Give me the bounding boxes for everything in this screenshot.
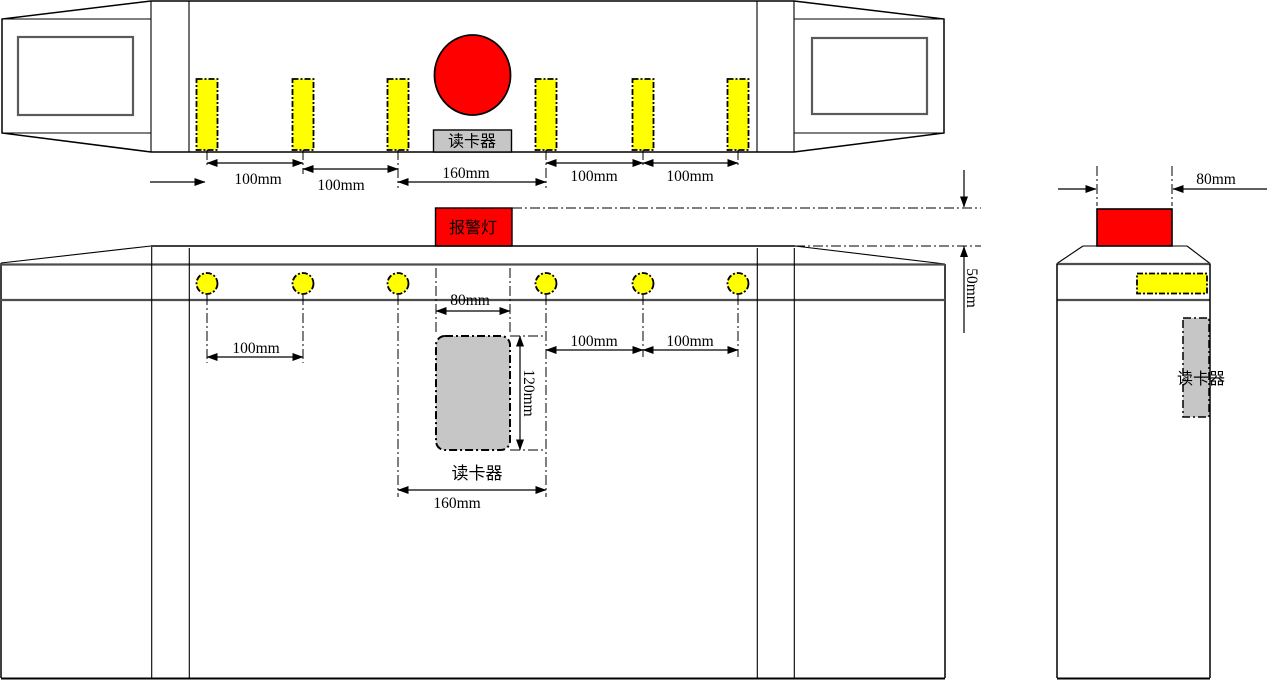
front-view: 100mm 80mm 100mm 100mm 120mm 160mm 读卡器	[0, 246, 945, 679]
drawing-canvas: 读卡器 100mm 100mm 160mm 100mm 100mm 报警灯	[0, 0, 1267, 681]
top-view: 读卡器 100mm 100mm 160mm 100mm 100mm	[2, 1, 944, 194]
top-led-6	[728, 79, 749, 150]
card-reader-side-label: 读卡器	[1177, 370, 1225, 388]
top-led-2	[293, 79, 314, 150]
dim-label: 100mm	[570, 168, 617, 185]
top-led-3	[388, 79, 409, 150]
card-reader-side	[1183, 318, 1209, 417]
right-end-cap	[794, 1, 944, 152]
alarm-lamp-projection: 报警灯 50mm	[436, 170, 982, 333]
gate-installation-diagram: 读卡器 100mm 100mm 160mm 100mm 100mm 报警灯	[0, 0, 1267, 681]
dim-label: 80mm	[1196, 171, 1236, 188]
left-end-cap	[2, 1, 151, 152]
front-led-4	[536, 273, 557, 294]
card-reader-front	[436, 336, 510, 450]
dim-label: 100mm	[666, 168, 713, 185]
card-reader-top-label: 读卡器	[448, 133, 496, 151]
right-cap-panel	[812, 38, 927, 114]
dim-label: 120mm	[520, 369, 537, 416]
dim-label: 160mm	[433, 495, 480, 512]
card-reader-front-label: 读卡器	[452, 464, 503, 483]
alarm-lamp-label: 报警灯	[449, 219, 497, 237]
dim-label: 100mm	[666, 333, 713, 350]
left-cap-panel	[18, 37, 133, 115]
top-led-5	[633, 79, 654, 150]
front-led-2	[293, 273, 314, 294]
alarm-lamp-side	[1097, 209, 1172, 246]
side-view-dimensions: 80mm	[1058, 166, 1267, 206]
front-led-6	[728, 273, 749, 294]
side-view: 80mm 读卡器	[1057, 166, 1267, 679]
dim-label: 160mm	[442, 165, 489, 182]
front-led-1	[197, 273, 218, 294]
dim-label: 100mm	[317, 177, 364, 194]
dim-label: 100mm	[232, 340, 279, 357]
top-led-4	[536, 79, 557, 150]
top-led-1	[197, 79, 218, 150]
top-view-dimensions: 100mm 100mm 160mm 100mm 100mm	[150, 150, 738, 194]
dim-label: 100mm	[570, 333, 617, 350]
front-led-3	[388, 273, 409, 294]
dim-label: 50mm	[963, 268, 980, 308]
front-led-5	[633, 273, 654, 294]
dim-label: 80mm	[450, 292, 490, 309]
side-led	[1137, 274, 1207, 294]
dim-label: 100mm	[234, 171, 281, 188]
alarm-beacon-top	[435, 35, 511, 115]
